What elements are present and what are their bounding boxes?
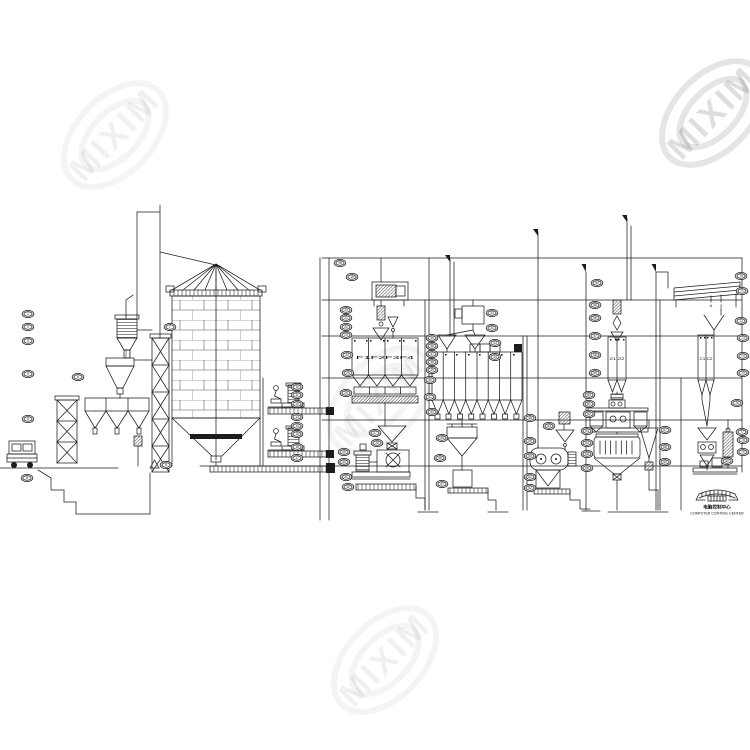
svg-text:72: 72 xyxy=(739,319,743,323)
equipment-tag-4: 4 xyxy=(22,370,34,377)
svg-text:57: 57 xyxy=(593,334,597,338)
equipment-tag-17: 17 xyxy=(291,454,303,461)
equipment-tag-14: 14 xyxy=(291,422,303,429)
svg-text:40: 40 xyxy=(428,378,432,382)
svg-text:2: 2 xyxy=(27,325,29,329)
equipment-tag-42: 42 xyxy=(426,408,438,415)
svg-text:77: 77 xyxy=(740,430,744,434)
flow-diagram-page: MIXIM MIXIM MIXIM MIXIM xyxy=(0,0,750,750)
svg-text:28: 28 xyxy=(375,441,379,445)
crumbler xyxy=(698,428,716,470)
svg-text:35: 35 xyxy=(430,336,434,340)
svg-text:22: 22 xyxy=(344,325,348,329)
equipment-tag-5: 5 xyxy=(22,415,34,422)
svg-text:18: 18 xyxy=(338,261,342,265)
equipment-tag-27: 27 xyxy=(369,429,381,436)
svg-text:74: 74 xyxy=(741,354,745,358)
equipment-tag-54: 54 xyxy=(591,279,603,286)
svg-text:15: 15 xyxy=(295,432,299,436)
svg-text:52: 52 xyxy=(528,486,532,490)
svg-text:6: 6 xyxy=(77,375,79,379)
equipment-tag-38: 38 xyxy=(426,358,438,365)
svg-text:43: 43 xyxy=(493,341,497,345)
svg-text:56: 56 xyxy=(593,316,597,320)
svg-text:16: 16 xyxy=(295,445,299,449)
equipment-tag-7: 7 xyxy=(164,323,176,330)
equipment-tag-63: 63 xyxy=(581,427,593,434)
equipment-tag-1: 1 xyxy=(22,310,34,317)
equipment-tag-23: 23 xyxy=(340,331,352,338)
screen-output-b-label: 3 xyxy=(720,303,723,308)
svg-text:27: 27 xyxy=(373,431,377,435)
equipment-tag-55: 55 xyxy=(589,301,601,308)
svg-text:33: 33 xyxy=(490,311,494,315)
equipment-tag-13: 13 xyxy=(291,413,303,420)
bucket-elevator-1 xyxy=(55,396,79,463)
svg-text:55: 55 xyxy=(593,303,597,307)
equipment-tag-24: 24 xyxy=(341,351,353,358)
equipment-tag-57: 57 xyxy=(589,332,601,339)
svg-text:3: 3 xyxy=(27,339,29,343)
svg-text:47: 47 xyxy=(440,482,444,486)
equipment-tag-74: 74 xyxy=(737,352,749,359)
svg-text:60: 60 xyxy=(587,393,591,397)
svg-text:64: 64 xyxy=(585,441,589,445)
pellet-cyclone xyxy=(640,420,658,510)
svg-text:69: 69 xyxy=(663,460,667,464)
svg-text:17: 17 xyxy=(295,456,299,460)
equipment-tag-62: 62 xyxy=(583,410,595,417)
svg-text:54: 54 xyxy=(595,281,599,285)
svg-text:49: 49 xyxy=(528,439,532,443)
equipment-tag-44: 44 xyxy=(489,353,501,360)
svg-text:50: 50 xyxy=(528,454,532,458)
equipment-tag-8: 8 xyxy=(21,474,33,481)
svg-text:53: 53 xyxy=(547,424,551,428)
storage-silo xyxy=(166,264,266,466)
svg-text:19: 19 xyxy=(350,275,354,279)
svg-text:30: 30 xyxy=(342,460,346,464)
equipment-tag-64: 64 xyxy=(581,439,593,446)
equipment-tag-61: 61 xyxy=(583,400,595,407)
pellet-bins-label: 21 22 xyxy=(610,357,625,361)
equipment-tag-37: 37 xyxy=(426,350,438,357)
dosing-top-drive xyxy=(447,300,484,335)
screen-output-a-label: A xyxy=(710,303,713,308)
svg-text:66: 66 xyxy=(585,466,589,470)
svg-text:38: 38 xyxy=(430,360,434,364)
equipment-tag-65: 65 xyxy=(581,450,593,457)
svg-text:36: 36 xyxy=(430,344,434,348)
liquid-addition xyxy=(556,412,574,450)
receiving-bins xyxy=(85,398,149,466)
equipment-tag-80: 80 xyxy=(721,457,733,464)
equipment-tag-77: 77 xyxy=(736,428,748,435)
equipment-tag-67: 67 xyxy=(659,426,671,433)
svg-text:25: 25 xyxy=(346,371,350,375)
equipment-tag-28: 28 xyxy=(371,439,383,446)
equipment-tag-32: 32 xyxy=(342,483,354,490)
equipment-tag-22: 22 xyxy=(340,323,352,330)
equipment-tag-29: 29 xyxy=(338,448,350,455)
svg-text:76: 76 xyxy=(735,401,739,405)
equipment-tag-21: 21 xyxy=(340,314,352,321)
equipment-tag-47: 47 xyxy=(436,480,448,487)
equipment-tag-72: 72 xyxy=(735,317,747,324)
equipment-tag-19: 19 xyxy=(346,273,358,280)
equipment-tag-70: 70 xyxy=(735,272,747,279)
svg-text:42: 42 xyxy=(430,410,434,414)
svg-text:7: 7 xyxy=(169,325,171,329)
svg-text:39: 39 xyxy=(430,368,434,372)
equipment-tag-78: 78 xyxy=(737,436,749,443)
svg-text:24: 24 xyxy=(345,353,349,357)
svg-text:9: 9 xyxy=(165,463,167,467)
control-center-label-zh: 电脑控制中心 xyxy=(703,504,731,511)
equipment-tag-56: 56 xyxy=(589,314,601,321)
equipment-tag-6: 6 xyxy=(72,373,84,380)
svg-text:46: 46 xyxy=(438,456,442,460)
svg-text:71: 71 xyxy=(740,289,744,293)
equipment-tag-15: 15 xyxy=(291,430,303,437)
equipment-tag-3: 3 xyxy=(22,337,34,344)
svg-text:67: 67 xyxy=(663,428,667,432)
svg-text:13: 13 xyxy=(295,415,299,419)
equipment-tag-49: 49 xyxy=(524,437,536,444)
svg-text:78: 78 xyxy=(741,438,745,442)
equipment-tag-69: 69 xyxy=(659,458,671,465)
svg-text:23: 23 xyxy=(344,333,348,337)
equipment-tag-46: 46 xyxy=(434,454,446,461)
equipment-tag-11: 11 xyxy=(291,391,303,398)
svg-text:8: 8 xyxy=(26,476,28,480)
pellet-bins: 21 22 xyxy=(608,337,626,394)
bin-distributors xyxy=(438,335,485,352)
scale-hopper xyxy=(447,420,496,510)
equipment-tag-34: 34 xyxy=(486,324,498,331)
equipment-tag-76: 76 xyxy=(731,399,743,406)
equipment-tag-48: 48 xyxy=(524,414,536,421)
svg-text:45: 45 xyxy=(440,436,444,440)
equipment-tag-18: 18 xyxy=(334,259,346,266)
process-flow-diagram: F1F2F3F4 xyxy=(0,0,750,750)
intake-cyclone xyxy=(106,358,134,398)
svg-text:51: 51 xyxy=(528,475,532,479)
svg-text:61: 61 xyxy=(587,402,591,406)
grading-bins-label: C1 C2 xyxy=(700,357,713,361)
equipment-tag-52: 52 xyxy=(524,484,536,491)
svg-text:70: 70 xyxy=(739,274,743,278)
equipment-tag-71: 71 xyxy=(736,287,748,294)
svg-text:44: 44 xyxy=(493,355,497,359)
silo-discharge-conveyor xyxy=(210,463,335,473)
control-console-icon xyxy=(696,490,738,501)
svg-text:34: 34 xyxy=(490,326,494,330)
svg-text:32: 32 xyxy=(346,485,350,489)
equipment-tag-20: 20 xyxy=(340,306,352,313)
svg-text:1: 1 xyxy=(27,312,29,316)
svg-text:4: 4 xyxy=(27,372,29,376)
equipment-tag-51: 51 xyxy=(524,473,536,480)
equipment-tag-26: 26 xyxy=(340,389,352,396)
svg-text:79: 79 xyxy=(741,450,745,454)
dosing-bins xyxy=(432,344,522,419)
equipment-tag-59: 59 xyxy=(589,369,601,376)
equipment-tag-30: 30 xyxy=(338,458,350,465)
svg-text:20: 20 xyxy=(344,308,348,312)
equipment-tag-35: 35 xyxy=(426,334,438,341)
grading-bins: C1 C2 xyxy=(698,335,714,426)
svg-text:62: 62 xyxy=(587,412,591,416)
control-center-label-en: COMPUTER CONTROL CENTER xyxy=(690,512,744,516)
delivery-truck xyxy=(0,441,118,468)
svg-text:29: 29 xyxy=(342,450,346,454)
svg-text:31: 31 xyxy=(344,475,348,479)
svg-text:21: 21 xyxy=(344,316,348,320)
drum-cleaner xyxy=(372,258,408,306)
equipment-tag-58: 58 xyxy=(589,351,601,358)
svg-text:37: 37 xyxy=(430,352,434,356)
pellet-mill xyxy=(588,394,648,432)
counterflow-cooler xyxy=(594,432,640,510)
batching-bins-label: F1F2F3F4 xyxy=(356,355,416,360)
svg-text:14: 14 xyxy=(295,424,299,428)
equipment-tag-12: 12 xyxy=(291,400,303,407)
equipment-tag-50: 50 xyxy=(524,452,536,459)
equipment-tag-66: 66 xyxy=(581,464,593,471)
building-floor-lines xyxy=(200,258,742,512)
equipment-tag-31: 31 xyxy=(340,473,352,480)
equipment-tag-2: 2 xyxy=(22,323,34,330)
equipment-tag-10: 10 xyxy=(291,383,303,390)
equipment-tag-39: 39 xyxy=(426,366,438,373)
equipment-tag-53: 53 xyxy=(543,422,555,429)
svg-text:73: 73 xyxy=(741,336,745,340)
svg-text:63: 63 xyxy=(585,429,589,433)
equipment-tag-33: 33 xyxy=(486,309,498,316)
bucket-elevator-2 xyxy=(150,334,171,472)
svg-text:12: 12 xyxy=(295,402,299,406)
svg-text:5: 5 xyxy=(27,417,29,421)
equipment-tag-41: 41 xyxy=(424,393,436,400)
svg-text:48: 48 xyxy=(528,416,532,420)
svg-text:80: 80 xyxy=(725,459,729,463)
svg-text:58: 58 xyxy=(593,353,597,357)
svg-text:65: 65 xyxy=(585,452,589,456)
equipment-tag-60: 60 xyxy=(583,391,595,398)
equipment-tag-68: 68 xyxy=(659,443,671,450)
equipment-tag-73: 73 xyxy=(737,334,749,341)
hammer-mill-group xyxy=(352,426,425,510)
pellet-feeder-stack xyxy=(611,300,623,341)
svg-text:11: 11 xyxy=(295,393,299,397)
grading-funnel xyxy=(704,315,724,335)
equipment-tag-16: 16 xyxy=(291,443,303,450)
svg-text:75: 75 xyxy=(741,371,745,375)
equipment-tag-43: 43 xyxy=(489,339,501,346)
svg-text:41: 41 xyxy=(428,395,432,399)
svg-text:10: 10 xyxy=(295,385,299,389)
rotary-grading-screen xyxy=(656,272,740,315)
equipment-tag-36: 36 xyxy=(426,342,438,349)
batching-bins: F1F2F3F4 xyxy=(352,338,418,426)
equipment-tag-45: 45 xyxy=(436,434,448,441)
equipment-tag-25: 25 xyxy=(342,369,354,376)
bag-dump-station-2 xyxy=(268,426,334,458)
pulse-filter xyxy=(115,295,152,360)
s3-airlock-funnel xyxy=(373,306,398,340)
equipment-tag-40: 40 xyxy=(424,376,436,383)
svg-text:59: 59 xyxy=(593,371,597,375)
equipment-tag-75: 75 xyxy=(737,369,749,376)
svg-text:26: 26 xyxy=(344,391,348,395)
equipment-tag-79: 79 xyxy=(737,448,749,455)
equipment-tag-9: 9 xyxy=(160,461,172,468)
svg-text:68: 68 xyxy=(663,445,667,449)
